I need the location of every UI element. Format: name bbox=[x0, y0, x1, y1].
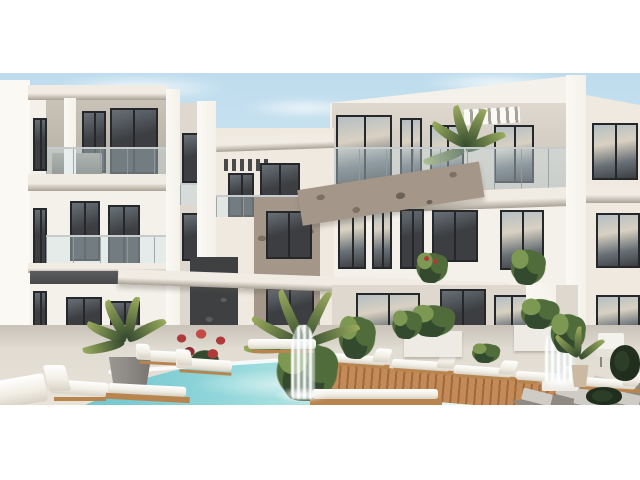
elevated-planter-palm bbox=[508, 245, 548, 285]
dark-canopy bbox=[30, 271, 122, 284]
shrub bbox=[470, 341, 502, 363]
curtained-window bbox=[592, 123, 638, 180]
palm-frond bbox=[82, 337, 125, 358]
red-flowers bbox=[420, 253, 442, 267]
palm-frond bbox=[578, 337, 605, 362]
lounger-frame bbox=[54, 397, 106, 401]
lounger-backrest bbox=[175, 349, 192, 366]
curtained-window bbox=[372, 207, 392, 269]
lounger-cushion bbox=[312, 389, 438, 399]
sun-lounger bbox=[175, 349, 237, 381]
palm-frond bbox=[575, 327, 582, 357]
lounger-backrest bbox=[371, 348, 392, 363]
roof-parapet bbox=[28, 85, 168, 100]
fountain-splash bbox=[274, 387, 330, 403]
potted-palm bbox=[556, 331, 604, 389]
sun-lounger bbox=[46, 365, 110, 405]
rendered-photo-stage: Modern white three-storey apartment comp… bbox=[0, 0, 640, 480]
left-building-corner-wall bbox=[0, 80, 30, 335]
architectural-render-photo bbox=[0, 73, 640, 405]
window bbox=[33, 208, 47, 266]
lounger-backrest bbox=[43, 365, 71, 391]
glass-balustrade bbox=[46, 235, 166, 265]
letterbox-bottom bbox=[0, 405, 640, 480]
floor-slab bbox=[28, 174, 168, 191]
dark-shrub bbox=[610, 345, 640, 381]
sun-lounger bbox=[310, 389, 444, 405]
sun-lounger bbox=[105, 379, 192, 405]
letterbox-top bbox=[0, 0, 640, 73]
floor-slab bbox=[586, 185, 640, 203]
curtained-window bbox=[596, 213, 640, 268]
shrub bbox=[390, 307, 424, 339]
beige-plant-pot bbox=[570, 365, 590, 387]
window bbox=[33, 118, 47, 171]
lounger-backrest bbox=[135, 343, 151, 358]
dark-shrub bbox=[586, 387, 622, 405]
